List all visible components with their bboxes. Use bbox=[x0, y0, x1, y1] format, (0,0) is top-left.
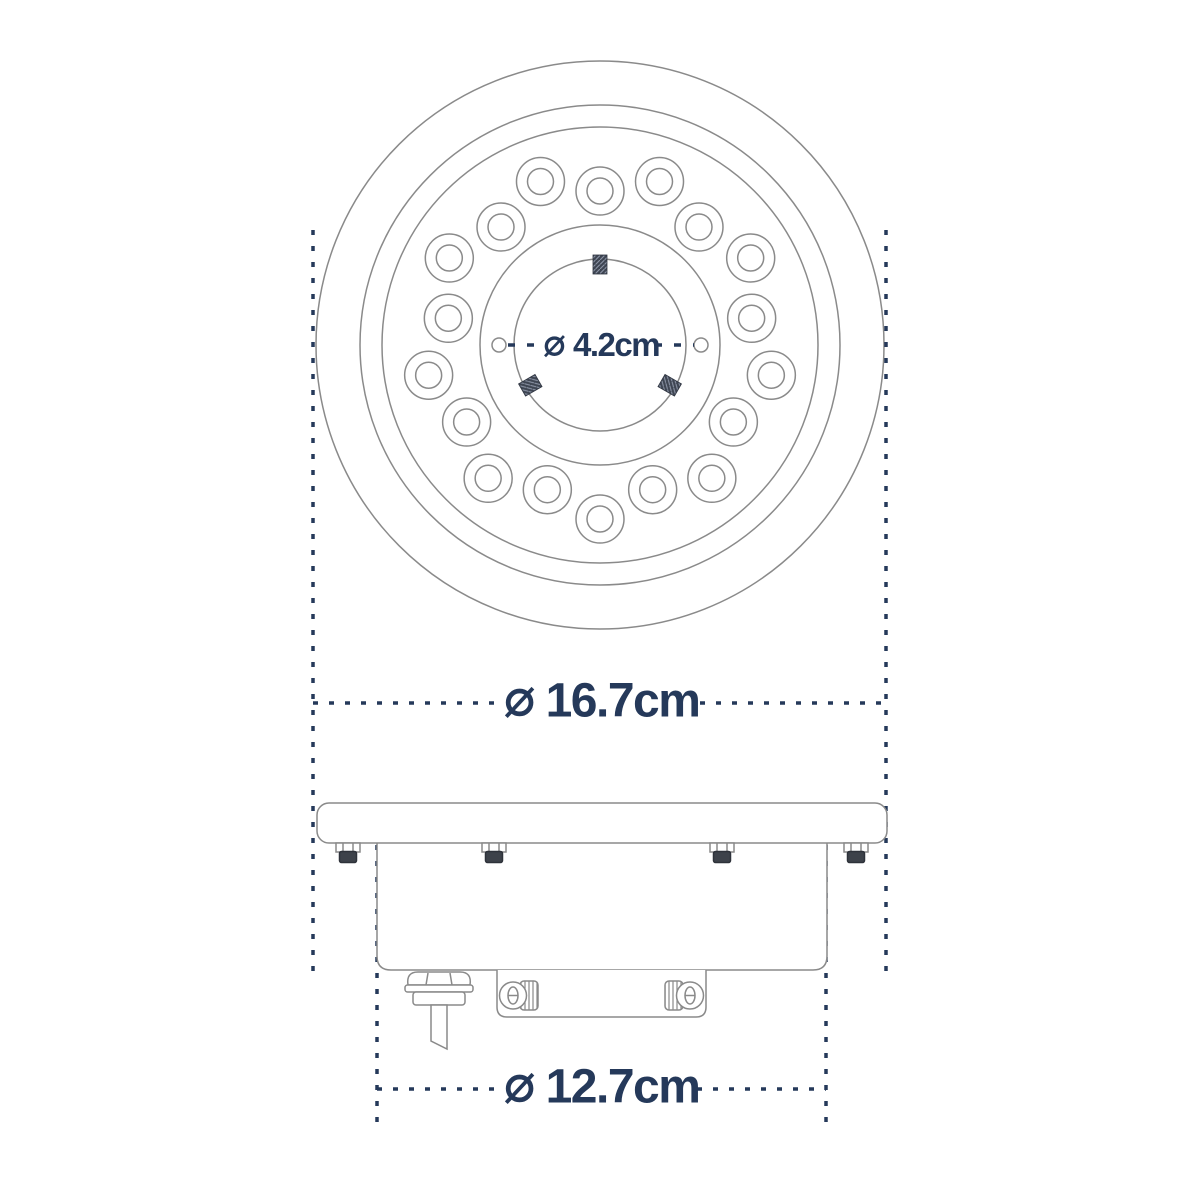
led-lens-inner bbox=[475, 465, 501, 491]
mounting-bracket bbox=[497, 970, 706, 1017]
threaded-stud bbox=[593, 255, 607, 274]
body-diameter-label: 12.7cm bbox=[501, 1060, 700, 1115]
pilot-hole bbox=[694, 338, 708, 352]
screw bbox=[710, 843, 734, 863]
diameter-icon bbox=[541, 332, 568, 359]
led-lens-inner bbox=[647, 168, 673, 194]
led-lens-inner bbox=[435, 305, 461, 331]
side-view bbox=[317, 803, 887, 1049]
screw bbox=[482, 843, 506, 863]
screw bbox=[336, 843, 360, 863]
knurled-screw bbox=[665, 981, 704, 1010]
gland-body bbox=[413, 992, 465, 1005]
led-lens-inner bbox=[416, 362, 442, 388]
led-lens-inner bbox=[454, 409, 480, 435]
technical-drawing-page: 4.2cm 16.7cm 12.7cm bbox=[0, 0, 1200, 1200]
flange-plate bbox=[317, 803, 887, 843]
led-lens-inner bbox=[640, 477, 666, 503]
overall-diameter-value: 16.7cm bbox=[546, 674, 700, 729]
led-lens-inner bbox=[739, 305, 765, 331]
led-lens-inner bbox=[686, 214, 712, 240]
led-lens-inner bbox=[758, 362, 784, 388]
led-lens-inner bbox=[527, 168, 553, 194]
led-lens-inner bbox=[534, 477, 560, 503]
led-lens-inner bbox=[738, 245, 764, 271]
led-lens-inner bbox=[488, 214, 514, 240]
housing-body bbox=[377, 843, 827, 970]
led-lens-inner bbox=[436, 245, 462, 271]
cable-gland bbox=[405, 972, 473, 1049]
gland-hex-nut bbox=[408, 972, 471, 985]
gland-washer bbox=[405, 985, 473, 992]
overall-diameter-label: 16.7cm bbox=[501, 674, 700, 729]
body-diameter-value: 12.7cm bbox=[546, 1060, 700, 1115]
led-lens-inner bbox=[587, 178, 613, 204]
threaded-stud bbox=[658, 374, 681, 396]
knurled-screw bbox=[500, 981, 539, 1010]
hub-diameter-value: 4.2cm bbox=[573, 326, 659, 364]
cable bbox=[431, 1005, 447, 1049]
led-lens-inner bbox=[720, 409, 746, 435]
led-lens-inner bbox=[587, 506, 613, 532]
pilot-hole bbox=[492, 338, 506, 352]
led-lens-inner bbox=[699, 465, 725, 491]
threaded-stud bbox=[519, 374, 542, 396]
hub-diameter-label: 4.2cm bbox=[541, 326, 659, 364]
diameter-icon bbox=[501, 1068, 539, 1106]
screw bbox=[844, 843, 868, 863]
fountain-light-drawing bbox=[0, 0, 1200, 1200]
diameter-icon bbox=[501, 682, 539, 720]
